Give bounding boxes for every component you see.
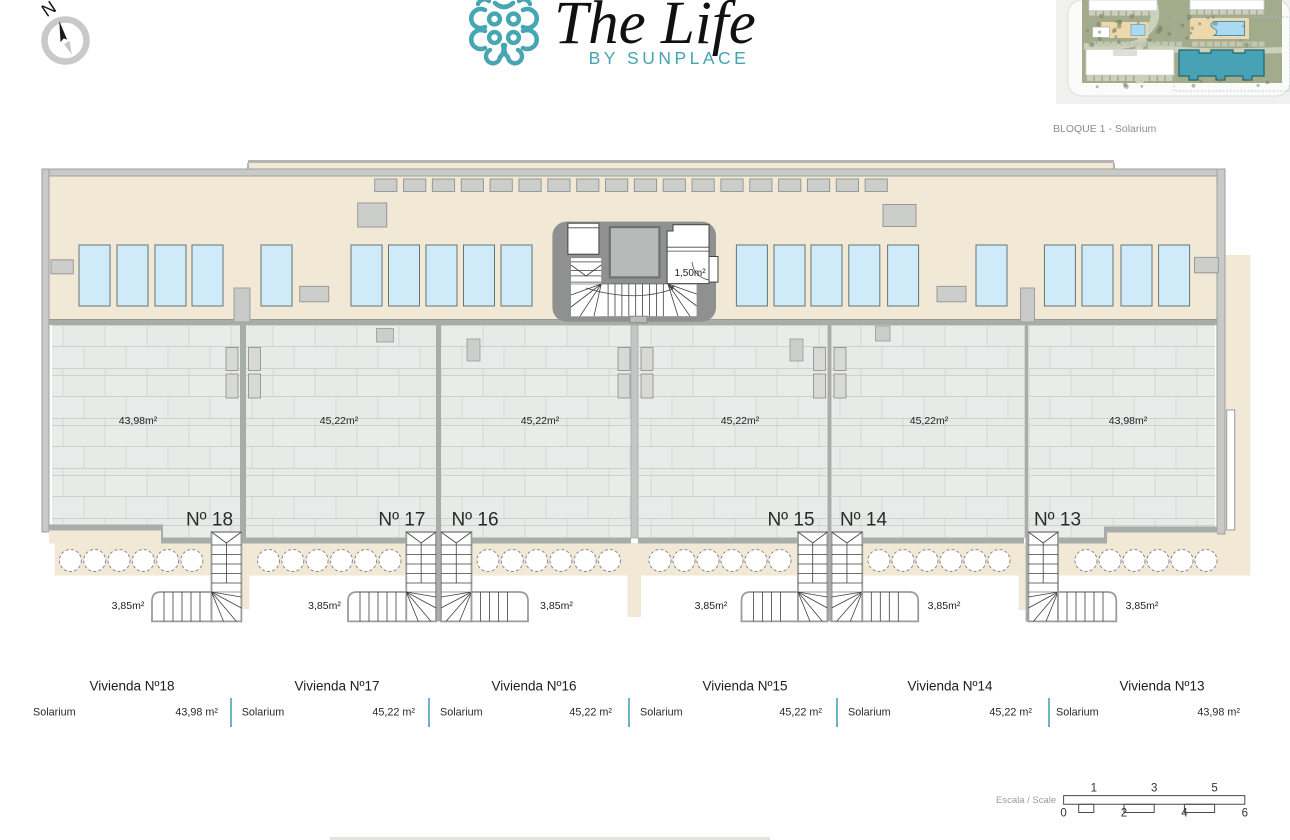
svg-text:1,50m²: 1,50m² — [674, 268, 706, 279]
svg-text:Solarium: Solarium — [33, 707, 76, 719]
svg-text:45,22 m²: 45,22 m² — [569, 707, 612, 719]
svg-text:43,98m²: 43,98m² — [119, 415, 158, 427]
svg-text:Vivienda Nº14: Vivienda Nº14 — [908, 679, 993, 694]
svg-text:Solarium: Solarium — [1056, 707, 1099, 719]
svg-text:4: 4 — [1181, 808, 1188, 820]
svg-text:Vivienda Nº15: Vivienda Nº15 — [703, 679, 788, 694]
svg-text:Nº 15: Nº 15 — [767, 510, 814, 531]
svg-text:3: 3 — [1151, 783, 1157, 795]
svg-text:45,22 m²: 45,22 m² — [372, 707, 415, 719]
svg-text:Vivienda Nº16: Vivienda Nº16 — [492, 679, 577, 694]
svg-text:6: 6 — [1242, 808, 1248, 820]
svg-text:Nº 17: Nº 17 — [378, 510, 425, 531]
svg-text:Nº 13: Nº 13 — [1034, 510, 1081, 531]
svg-text:BY SUNPLACE: BY SUNPLACE — [589, 48, 750, 68]
svg-text:5: 5 — [1211, 783, 1217, 795]
svg-text:45,22m²: 45,22m² — [320, 415, 359, 427]
svg-text:3,85m²: 3,85m² — [1126, 600, 1159, 612]
svg-text:2: 2 — [1121, 808, 1127, 820]
svg-text:3,85m²: 3,85m² — [308, 600, 341, 612]
svg-text:Vivienda Nº17: Vivienda Nº17 — [295, 679, 380, 694]
svg-text:3,85m²: 3,85m² — [928, 600, 961, 612]
svg-text:Nº 14: Nº 14 — [840, 510, 888, 531]
svg-text:43,98 m²: 43,98 m² — [1197, 707, 1240, 719]
svg-text:Solarium: Solarium — [848, 707, 891, 719]
svg-text:43,98m²: 43,98m² — [1109, 415, 1148, 427]
svg-text:3,85m²: 3,85m² — [112, 600, 145, 612]
svg-text:1: 1 — [1091, 783, 1097, 795]
svg-text:Nº 16: Nº 16 — [451, 510, 498, 531]
svg-text:Vivienda Nº13: Vivienda Nº13 — [1120, 679, 1205, 694]
svg-text:Solarium: Solarium — [440, 707, 483, 719]
svg-text:Vivienda Nº18: Vivienda Nº18 — [90, 679, 175, 694]
svg-text:Solarium: Solarium — [640, 707, 683, 719]
svg-text:45,22m²: 45,22m² — [521, 415, 560, 427]
svg-text:BLOQUE 1 - Solarium: BLOQUE 1 - Solarium — [1053, 123, 1157, 135]
svg-text:N: N — [38, 0, 60, 21]
svg-text:45,22m²: 45,22m² — [910, 415, 949, 427]
svg-text:43,98 m²: 43,98 m² — [175, 707, 218, 719]
svg-text:45,22 m²: 45,22 m² — [989, 707, 1032, 719]
svg-text:0: 0 — [1060, 808, 1066, 820]
svg-text:3,85m²: 3,85m² — [540, 600, 573, 612]
svg-text:45,22m²: 45,22m² — [721, 415, 760, 427]
svg-text:3,85m²: 3,85m² — [695, 600, 728, 612]
svg-text:Solarium: Solarium — [242, 707, 285, 719]
svg-text:Escala / Scale: Escala / Scale — [996, 795, 1056, 806]
svg-text:45,22 m²: 45,22 m² — [779, 707, 822, 719]
svg-text:Nº 18: Nº 18 — [186, 510, 233, 531]
